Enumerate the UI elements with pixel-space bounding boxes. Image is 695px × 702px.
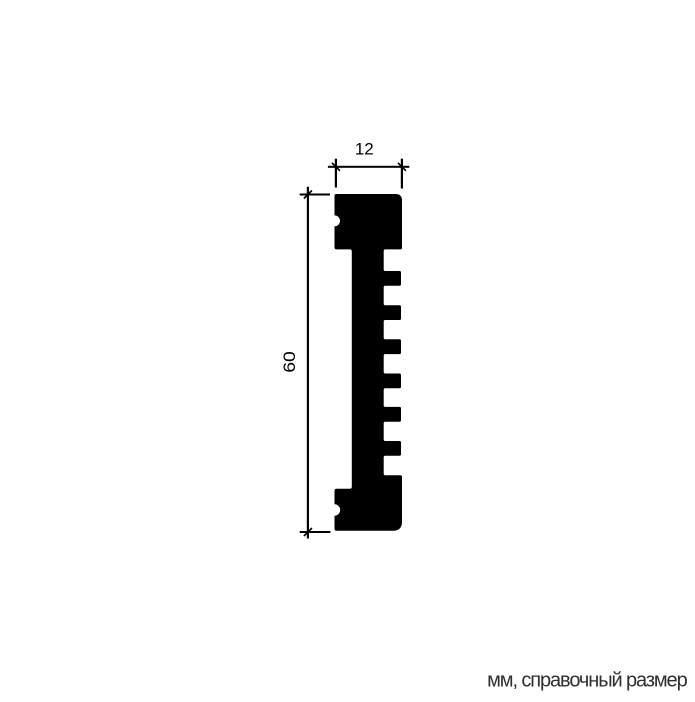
svg-text:60: 60 xyxy=(280,351,299,373)
svg-text:12: 12 xyxy=(355,140,374,159)
svg-text:мм, справочный размер: мм, справочный размер xyxy=(487,669,687,691)
